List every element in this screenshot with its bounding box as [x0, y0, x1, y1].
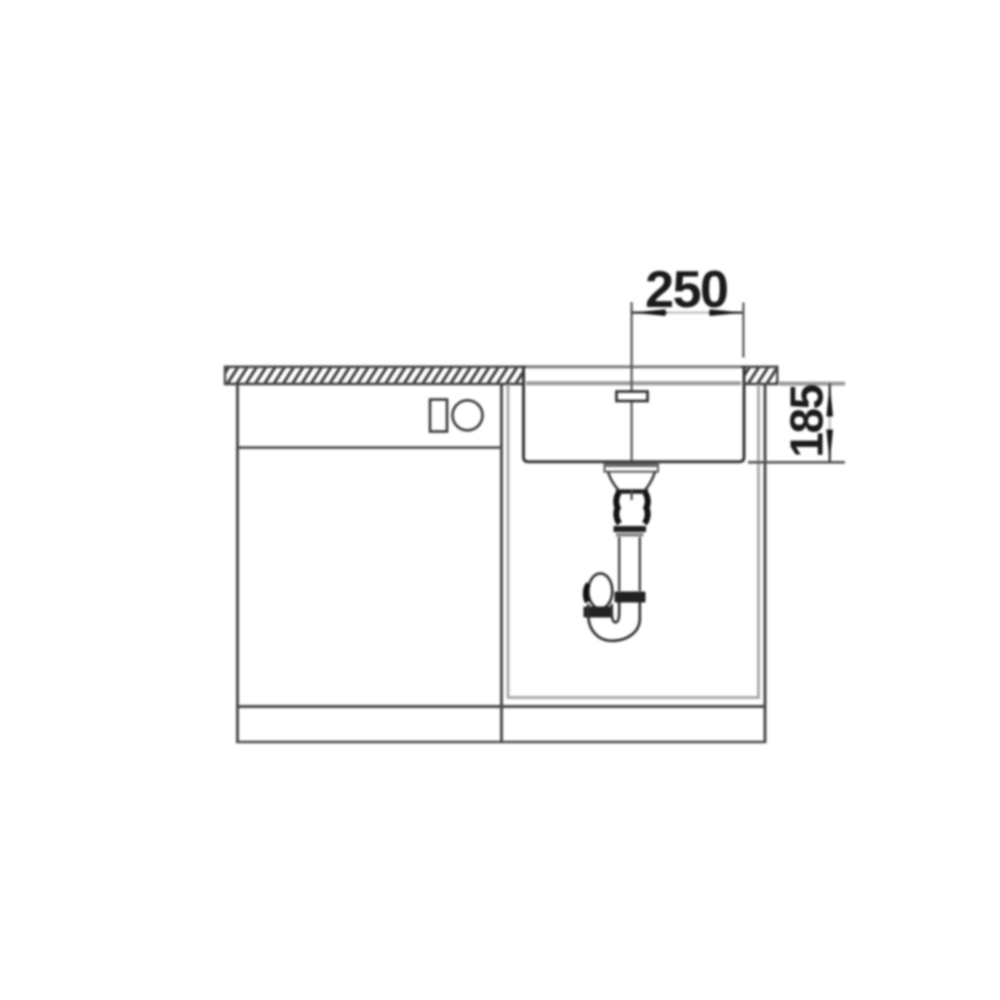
svg-text:250: 250: [645, 261, 727, 319]
svg-text:185: 185: [781, 384, 833, 457]
